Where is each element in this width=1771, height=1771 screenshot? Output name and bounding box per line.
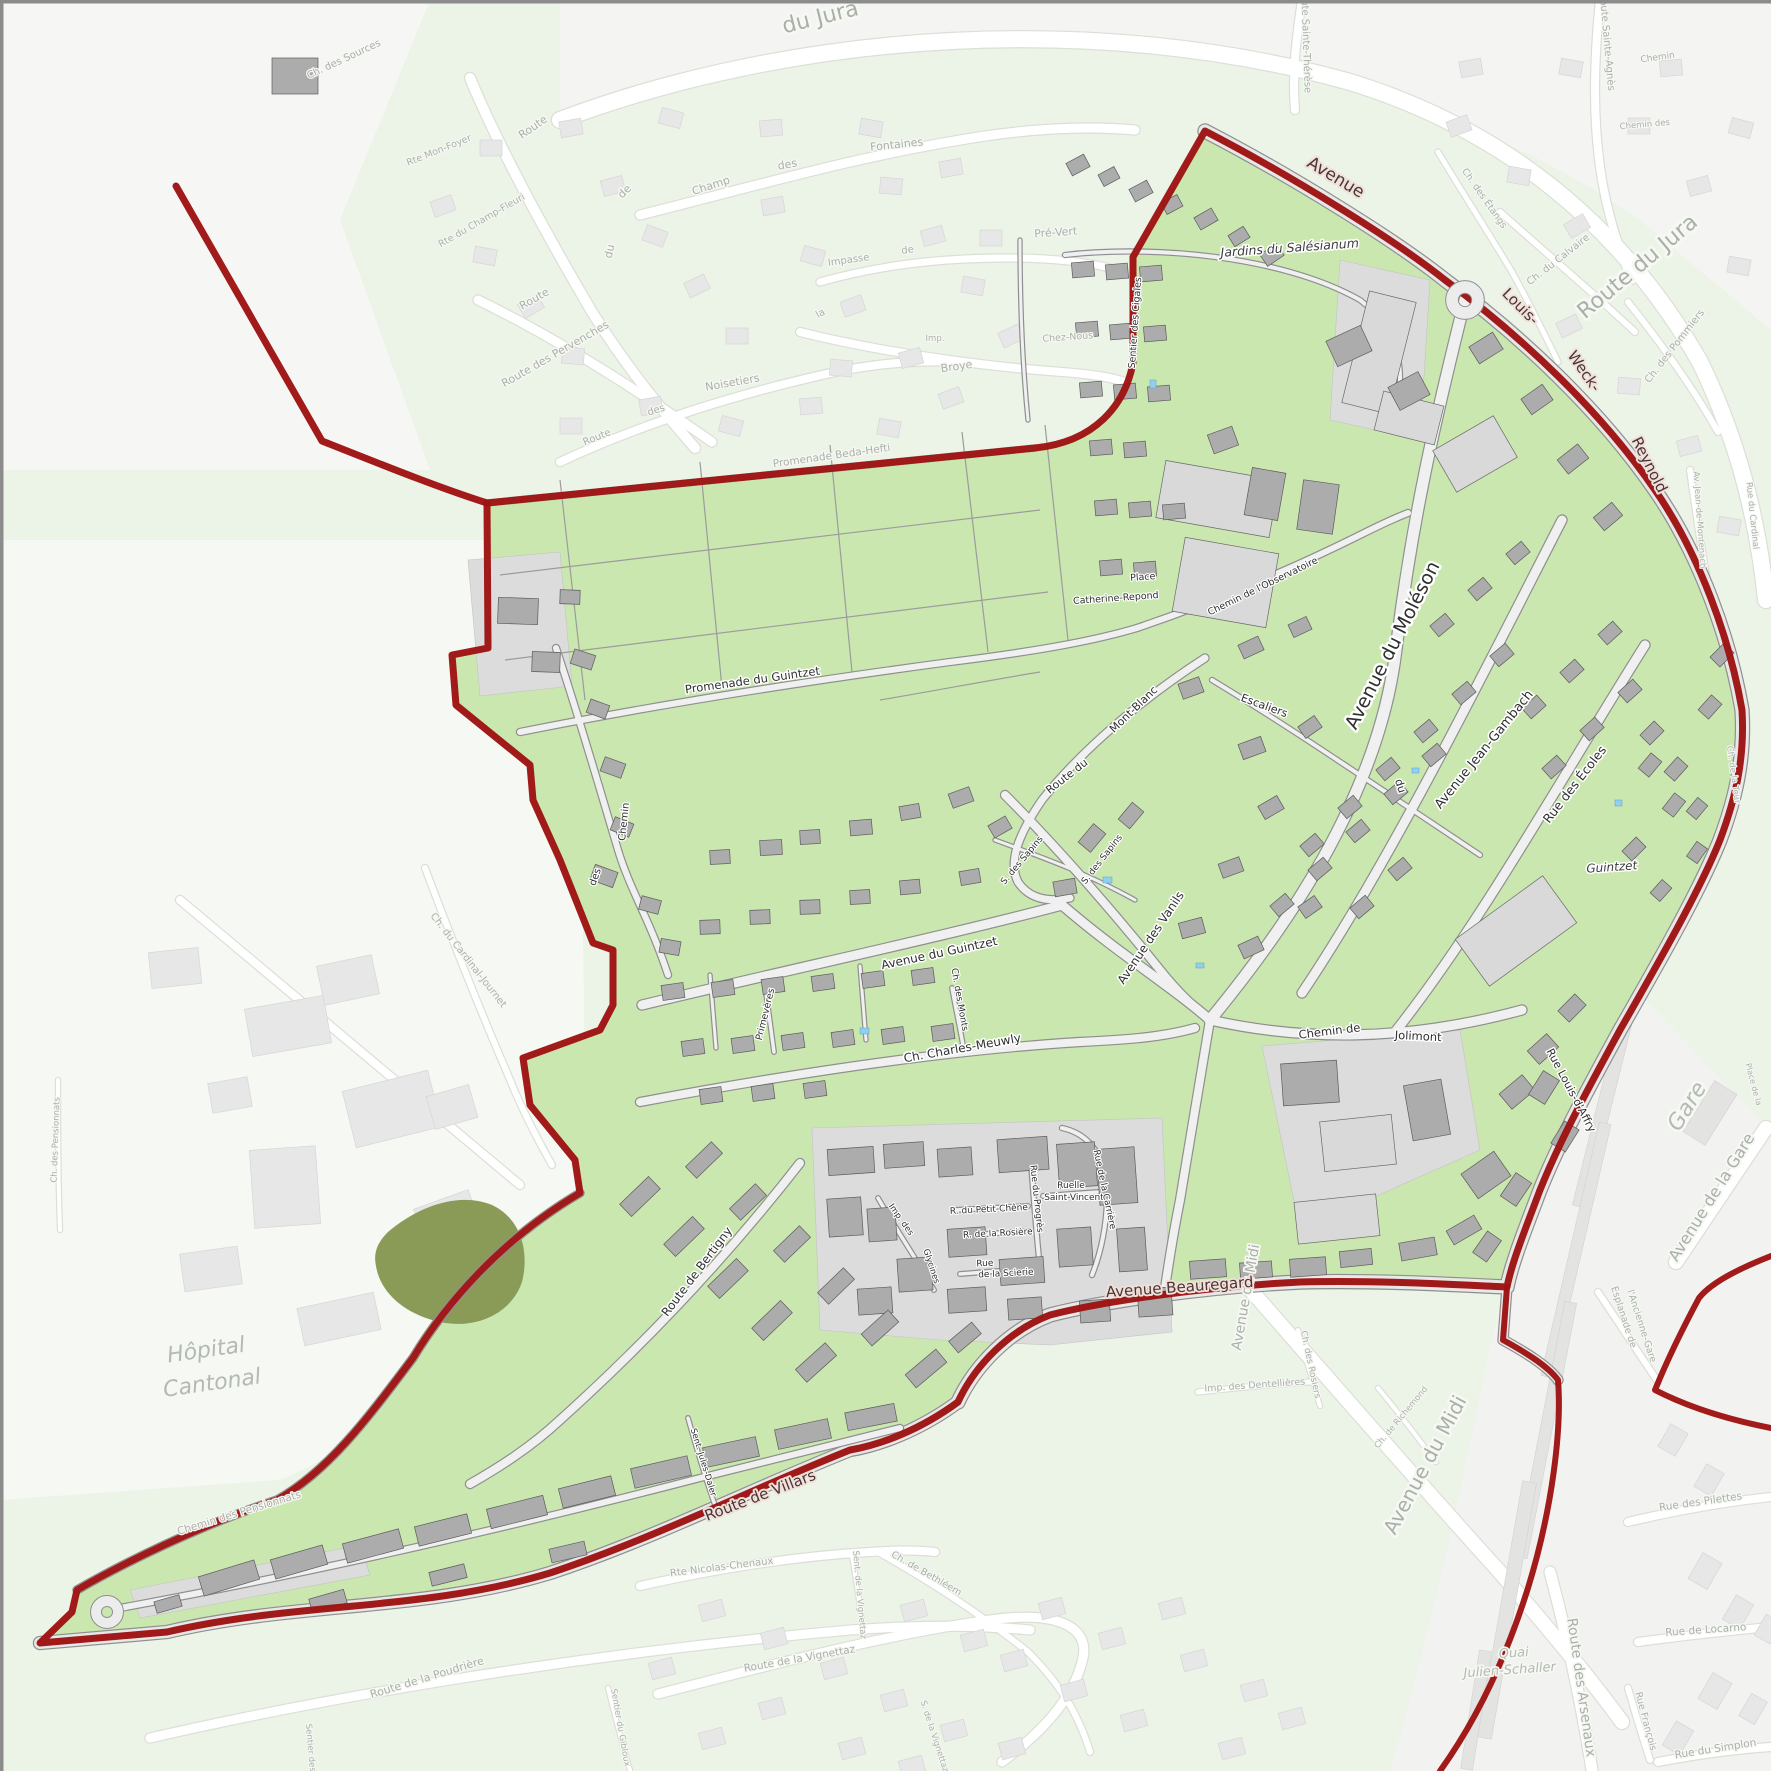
street-label: Saint-Vincent [1044, 1193, 1104, 1203]
window-edge-top [0, 0, 1771, 4]
building [1297, 480, 1340, 535]
building [751, 1084, 775, 1102]
building-outside [249, 1146, 320, 1228]
street-label: Rue [976, 1259, 994, 1270]
building [750, 910, 770, 925]
building [931, 1024, 955, 1042]
building [659, 938, 681, 955]
area-label-outside: Quai [1498, 1645, 1529, 1662]
building [681, 1039, 705, 1057]
building [1117, 1227, 1148, 1272]
swimming-pool [1412, 768, 1419, 773]
building [498, 597, 539, 624]
building [781, 1033, 805, 1051]
building [959, 868, 981, 885]
building [700, 920, 720, 935]
building [1071, 261, 1094, 278]
building-outside [1559, 58, 1583, 78]
building-outside [180, 1246, 243, 1292]
building [711, 980, 735, 998]
map-canvas[interactable]: du JuraRoute du JuraCh. des SourcesRoute… [0, 0, 1771, 1771]
building [1162, 503, 1185, 520]
building-outside [1727, 256, 1751, 276]
building-outside [859, 118, 883, 138]
building-outside [208, 1077, 253, 1113]
street-label-outside: de [901, 244, 915, 257]
building [911, 968, 935, 986]
building-outside [877, 418, 901, 438]
swimming-pool [1150, 380, 1156, 388]
building [811, 974, 835, 992]
building-outside [1717, 516, 1741, 536]
building-outside [980, 230, 1002, 246]
swimming-pool [860, 1028, 869, 1034]
building [532, 652, 561, 673]
building [1089, 439, 1112, 456]
building [850, 889, 871, 904]
building [899, 803, 921, 820]
swimming-pool [1615, 800, 1622, 806]
building-large [1320, 1114, 1397, 1171]
building [831, 1030, 855, 1048]
street-label: Ruelle [1057, 1181, 1085, 1191]
building-outside [829, 359, 852, 377]
building-outside [726, 328, 748, 344]
building-outside [879, 177, 902, 195]
building [881, 1027, 905, 1045]
building [1339, 1248, 1372, 1267]
building [560, 590, 580, 605]
building [1105, 263, 1128, 280]
building [710, 849, 731, 864]
window-edge-left [0, 0, 4, 1771]
building [1057, 1227, 1094, 1267]
building [937, 1147, 973, 1177]
building [1123, 441, 1146, 458]
building [1143, 325, 1166, 342]
building-outside [1617, 377, 1640, 395]
building-outside [559, 118, 583, 138]
building-outside [473, 246, 497, 266]
building-outside [961, 276, 985, 296]
swimming-pool [1103, 877, 1112, 883]
building [1094, 499, 1117, 516]
building-outside [759, 119, 782, 137]
street-label: Place [1130, 571, 1156, 584]
building-outside [1507, 166, 1531, 186]
building [899, 879, 920, 895]
building [1079, 381, 1102, 398]
building [997, 1136, 1049, 1172]
building [827, 1146, 875, 1175]
building [1289, 1257, 1326, 1277]
building [1128, 501, 1151, 518]
building [731, 1036, 755, 1054]
building-outside [480, 140, 502, 156]
building [699, 1087, 723, 1105]
street-label: Jolimont [1393, 1028, 1442, 1045]
building [827, 1197, 864, 1237]
building-outside [560, 418, 582, 434]
building-outside [1459, 58, 1483, 78]
building [947, 1287, 987, 1314]
building [1099, 559, 1122, 576]
swimming-pool [1196, 963, 1204, 968]
building [803, 1081, 827, 1099]
building [800, 829, 821, 844]
building-outside [761, 196, 785, 216]
building-large [1294, 1194, 1380, 1244]
building [1281, 1060, 1340, 1106]
building [883, 1142, 925, 1169]
building [849, 819, 872, 836]
building [661, 983, 685, 1001]
building [861, 971, 885, 989]
district-map[interactable]: du JuraRoute du JuraCh. des SourcesRoute… [0, 0, 1771, 1771]
building [800, 900, 820, 915]
building-outside [148, 947, 201, 988]
building-outside [799, 397, 822, 415]
street-label-outside: Imp. [926, 334, 945, 344]
building [760, 839, 783, 855]
building-outside [939, 158, 963, 178]
